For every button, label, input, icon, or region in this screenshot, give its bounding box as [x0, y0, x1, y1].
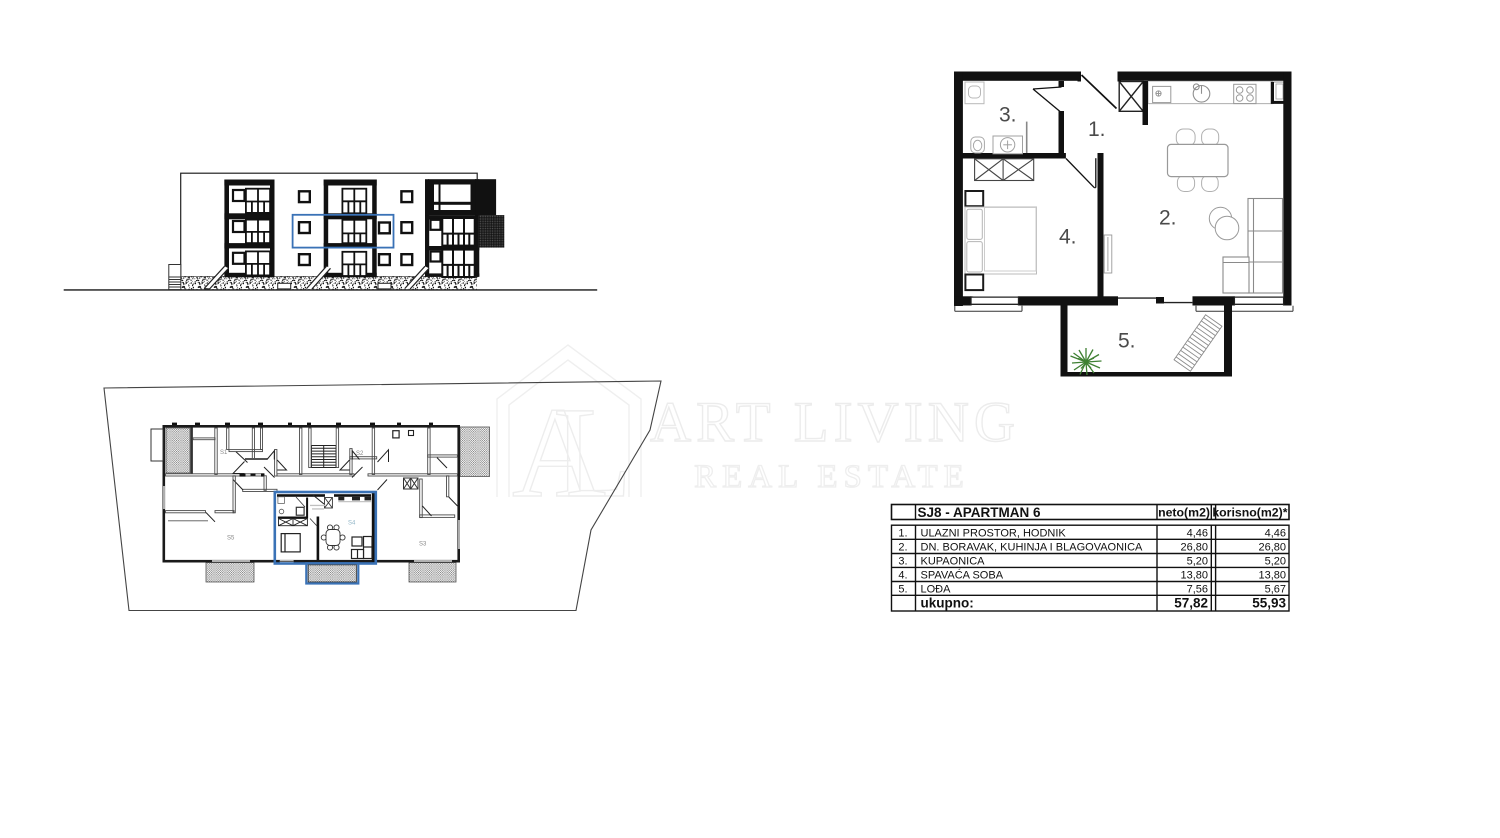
svg-text:5.: 5.	[1118, 330, 1136, 353]
svg-text:4,46: 4,46	[1265, 527, 1286, 539]
svg-text:13,80: 13,80	[1180, 569, 1208, 581]
svg-text:26,80: 26,80	[1180, 541, 1208, 553]
svg-text:1.: 1.	[1088, 118, 1106, 141]
svg-text:SPAVAĆA SOBA: SPAVAĆA SOBA	[921, 568, 1004, 581]
svg-text:13,80: 13,80	[1258, 569, 1286, 581]
svg-text:L: L	[553, 381, 632, 525]
svg-text:LOĐA: LOĐA	[921, 583, 952, 595]
svg-text:S3: S3	[419, 542, 427, 548]
svg-text:S1: S1	[220, 450, 228, 456]
svg-text:2.: 2.	[1159, 207, 1177, 230]
svg-text:ukupno:: ukupno:	[921, 596, 974, 611]
svg-text:S4: S4	[348, 521, 356, 527]
svg-text:1.: 1.	[898, 527, 907, 539]
svg-text:7,56: 7,56	[1187, 583, 1208, 595]
svg-text:5,20: 5,20	[1265, 555, 1286, 567]
svg-text:5.: 5.	[898, 583, 907, 595]
svg-text:KUPAONICA: KUPAONICA	[921, 555, 986, 567]
svg-text:neto(m2): neto(m2)	[1158, 506, 1210, 520]
svg-text:S5: S5	[227, 536, 235, 542]
svg-text:3.: 3.	[898, 555, 907, 567]
svg-text:S2: S2	[356, 451, 364, 457]
svg-text:korisno(m2)*: korisno(m2)*	[1212, 506, 1287, 520]
svg-text:SJ8 - APARTMAN 6: SJ8 - APARTMAN 6	[918, 505, 1042, 520]
svg-text:5,67: 5,67	[1265, 583, 1286, 595]
svg-text:2.: 2.	[898, 541, 907, 553]
svg-text:26,80: 26,80	[1258, 541, 1286, 553]
svg-text:REAL ESTATE: REAL ESTATE	[694, 459, 970, 495]
svg-text:ULAZNI PROSTOR, HODNIK: ULAZNI PROSTOR, HODNIK	[921, 527, 1067, 539]
svg-text:DN. BORAVAK, KUHINJA I BLAGOVA: DN. BORAVAK, KUHINJA I BLAGOVAONICA	[921, 541, 1144, 553]
svg-text:4,46: 4,46	[1187, 527, 1208, 539]
svg-text:3.: 3.	[999, 104, 1017, 127]
svg-text:ART LIVING: ART LIVING	[650, 391, 1020, 454]
svg-text:4.: 4.	[1059, 225, 1077, 248]
svg-text:55,93: 55,93	[1252, 596, 1286, 611]
svg-text:57,82: 57,82	[1174, 596, 1208, 611]
svg-text:4.: 4.	[898, 569, 907, 581]
svg-text:5,20: 5,20	[1187, 555, 1208, 567]
